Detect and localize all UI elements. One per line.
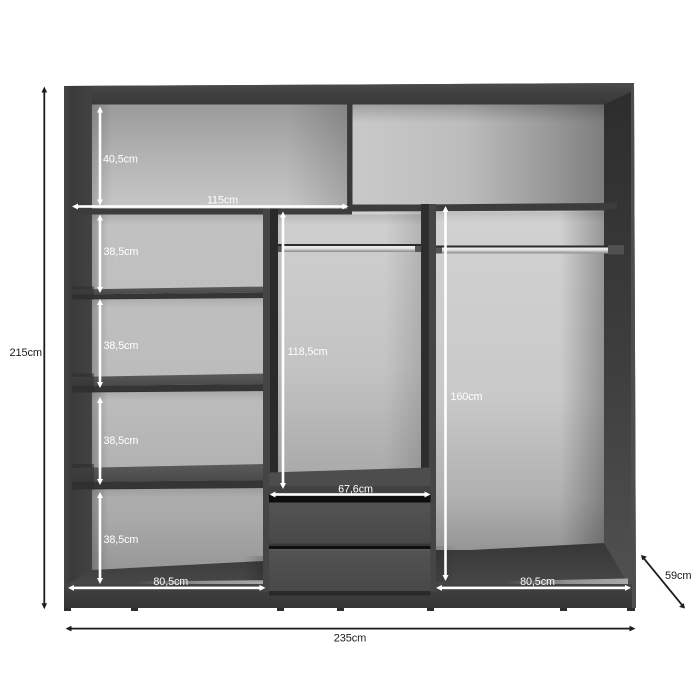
svg-text:80,5cm: 80,5cm [520, 576, 555, 588]
svg-text:160cm: 160cm [451, 391, 483, 403]
svg-text:40,5cm: 40,5cm [103, 154, 138, 166]
svg-text:38,5cm: 38,5cm [104, 340, 139, 352]
svg-text:38,5cm: 38,5cm [104, 534, 139, 546]
svg-text:38,5cm: 38,5cm [104, 246, 139, 258]
svg-text:115cm: 115cm [207, 195, 238, 207]
svg-text:80,5cm: 80,5cm [153, 576, 188, 588]
svg-text:118,5cm: 118,5cm [288, 346, 328, 358]
svg-text:215cm: 215cm [9, 347, 42, 359]
svg-text:235cm: 235cm [334, 633, 367, 645]
svg-text:59cm: 59cm [665, 570, 692, 582]
svg-text:67,6cm: 67,6cm [338, 484, 373, 496]
svg-text:38,5cm: 38,5cm [104, 435, 139, 447]
